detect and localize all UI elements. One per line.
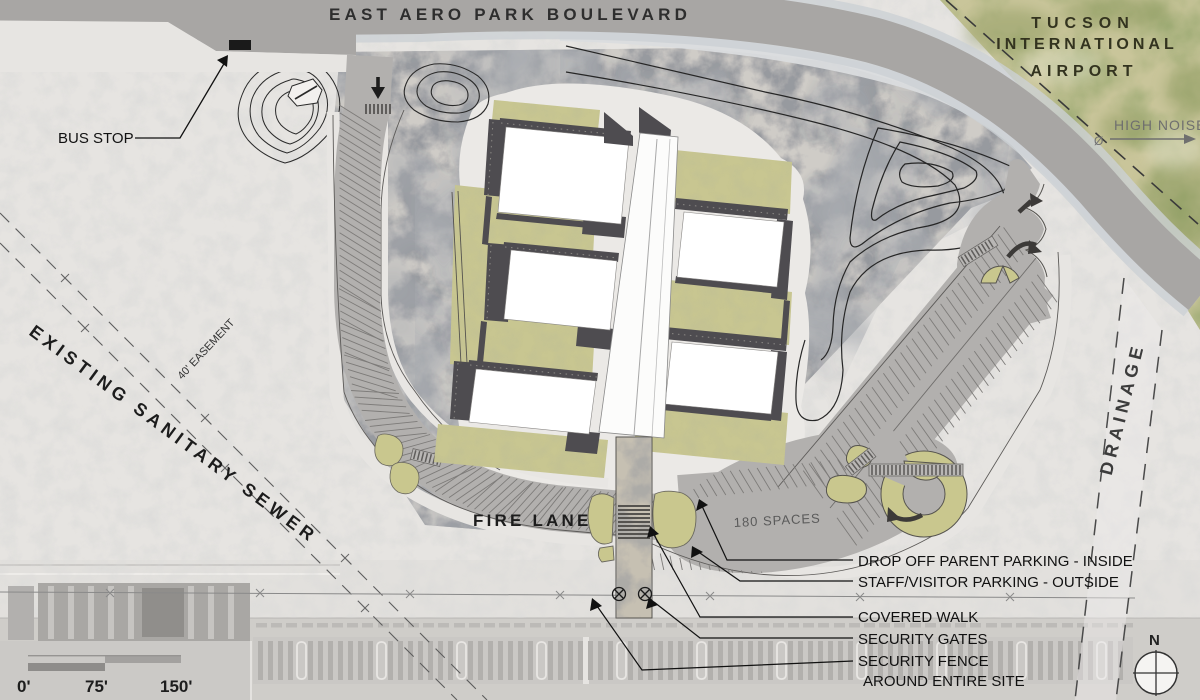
svg-text:HIGH NOISE: HIGH NOISE — [1114, 117, 1200, 133]
svg-text:AROUND ENTIRE SITE: AROUND ENTIRE SITE — [863, 673, 1025, 690]
svg-text:COVERED WALK: COVERED WALK — [858, 609, 978, 626]
svg-text:TUCSON: TUCSON — [1031, 15, 1135, 32]
svg-text:SECURITY FENCE: SECURITY FENCE — [858, 653, 989, 670]
svg-text:0': 0' — [17, 677, 31, 696]
svg-text:SECURITY GATES: SECURITY GATES — [858, 631, 987, 648]
svg-text:EAST AERO PARK BOULEVARD: EAST AERO PARK BOULEVARD — [329, 5, 691, 24]
svg-text:BUS STOP: BUS STOP — [58, 130, 134, 147]
svg-text:STAFF/VISITOR PARKING - OUTSID: STAFF/VISITOR PARKING - OUTSIDE — [858, 574, 1119, 591]
svg-text:N: N — [1149, 632, 1160, 649]
svg-text:Ø: Ø — [1094, 134, 1103, 148]
svg-text:150': 150' — [160, 677, 192, 696]
svg-text:FIRE LANE: FIRE LANE — [473, 511, 592, 530]
svg-text:DROP OFF PARENT PARKING - INSI: DROP OFF PARENT PARKING - INSIDE — [858, 553, 1133, 570]
svg-text:INTERNATIONAL: INTERNATIONAL — [996, 36, 1177, 53]
svg-text:75': 75' — [85, 677, 108, 696]
svg-text:AIRPORT: AIRPORT — [1031, 63, 1138, 80]
